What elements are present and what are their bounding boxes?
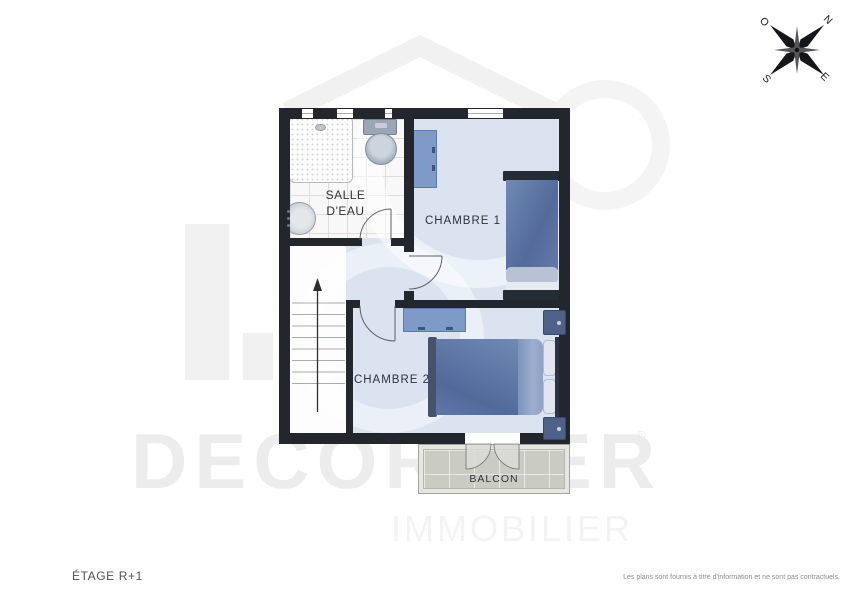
registered-trademark-icon: ®	[636, 428, 646, 443]
bed-pillow	[506, 267, 558, 283]
toilet-bowl	[365, 133, 397, 165]
shower-drain	[315, 124, 326, 131]
compass-point-nw	[770, 25, 797, 50]
room-label-bedroom1: CHAMBRE 1	[413, 215, 513, 227]
balcony	[418, 444, 570, 494]
compass-point-se	[797, 50, 824, 75]
sink-faucet-dot	[287, 210, 290, 213]
stairwell-floor	[290, 238, 346, 433]
dresser-handle	[418, 327, 425, 330]
bed-sheet-fold	[518, 339, 543, 415]
wall-top	[279, 108, 570, 119]
window	[468, 109, 503, 118]
sink-faucet-dot	[287, 224, 290, 227]
watermark-logo-bar	[185, 224, 229, 380]
wardrobe-handle	[432, 165, 435, 171]
dresser-handle	[446, 327, 453, 330]
wall-left	[279, 108, 290, 444]
bed-foot-bar	[503, 290, 561, 300]
wall-bottom	[279, 433, 570, 444]
bathroom-label-line1: SALLE	[303, 188, 388, 204]
nightstand	[543, 310, 566, 335]
balcony-door-opening	[465, 433, 520, 444]
floor-level-label: ÉTAGE R+1	[72, 569, 143, 583]
compass-point-left	[774, 47, 797, 53]
window	[302, 109, 313, 118]
compass-rose: O N S E	[752, 12, 844, 92]
window	[337, 109, 353, 118]
wall-bath-bottom-right	[391, 238, 414, 246]
wall-bath-bedroom1-upper	[404, 119, 414, 252]
floor-plan-page: DECORDIER ® IMMOBILIER O N S E	[0, 0, 848, 600]
room-label-bedroom2: CHAMBRE 2	[342, 374, 442, 386]
nightstand-knob	[557, 321, 561, 325]
compass-point-right	[797, 47, 820, 53]
compass-point-sw	[770, 50, 797, 75]
bed-blanket	[506, 180, 558, 270]
compass-point-ne	[797, 25, 824, 50]
double-bed-bedroom2	[428, 337, 560, 417]
nightstand	[543, 417, 566, 440]
nightstand-knob	[557, 427, 561, 431]
wardrobe-bedroom1	[413, 130, 437, 188]
watermark-subtitle-text: IMMOBILIER	[391, 511, 649, 547]
bathroom-label-line2: D'EAU	[303, 204, 388, 220]
wall-bedroom2-top-right	[395, 300, 570, 308]
window	[385, 109, 392, 118]
single-bed-bedroom1	[503, 171, 561, 300]
roof-chevron	[287, 46, 553, 112]
wall-stairs-bedroom2	[346, 308, 353, 433]
room-label-balcony: BALCON	[454, 473, 534, 485]
compass-point-up	[794, 26, 800, 50]
toilet-flush-button	[375, 123, 387, 128]
legal-disclaimer: Les plans sont fournis à titre d'informa…	[500, 574, 840, 581]
bed-blanket	[436, 339, 518, 415]
wardrobe-handle	[432, 147, 435, 153]
wall-right	[559, 108, 570, 444]
floor-plan	[279, 108, 570, 444]
wall-bath-bottom-left	[279, 238, 362, 246]
sink-faucet-dot	[287, 217, 290, 220]
compass-point-down	[794, 50, 800, 74]
dresser-bedroom2	[403, 308, 466, 332]
wall-bedroom2-top-left	[346, 300, 360, 308]
watermark-logo-block	[243, 333, 273, 380]
room-label-bathroom: SALLE D'EAU	[303, 188, 388, 219]
compass-center	[795, 48, 799, 52]
